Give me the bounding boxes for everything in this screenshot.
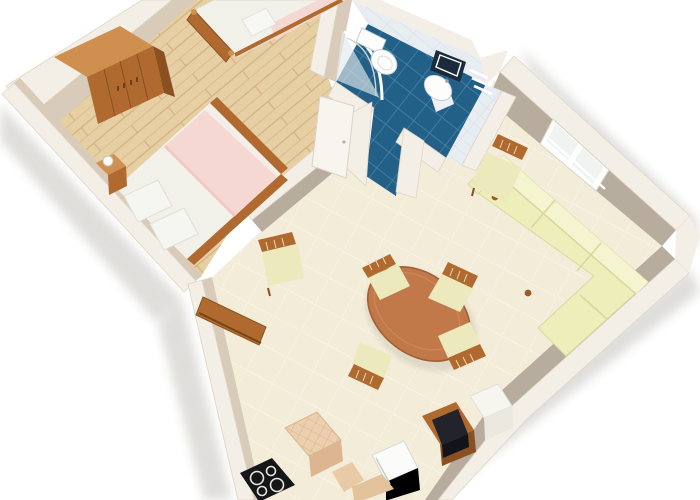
floor-plan-render bbox=[0, 0, 700, 500]
table-lamp-icon bbox=[103, 156, 113, 166]
bathroom-door-open bbox=[312, 96, 354, 178]
apartment-3d-plan bbox=[0, 0, 700, 500]
